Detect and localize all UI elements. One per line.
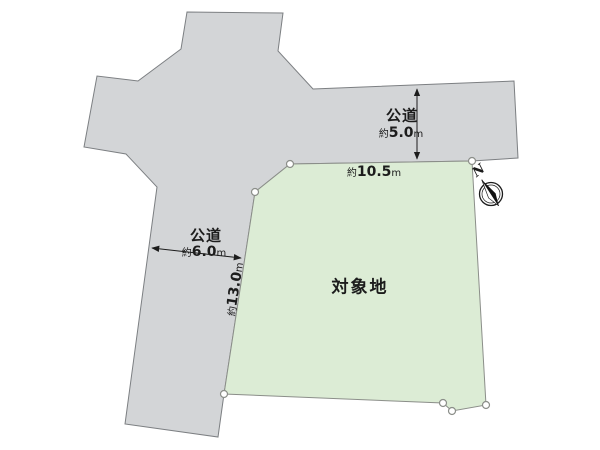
north-frontage-label: 約10.5m bbox=[347, 163, 401, 179]
dim-value: 5.0 bbox=[389, 125, 414, 141]
vertex-marker bbox=[221, 391, 228, 398]
land-plot-diagram: 公道 約5.0m 約10.5m 公道 約6.0m 約13.0m 対象地 N bbox=[0, 0, 600, 450]
dim-prefix: 約 bbox=[182, 248, 192, 259]
dim-unit: m bbox=[391, 168, 401, 179]
dim-prefix: 約 bbox=[227, 305, 239, 317]
vertex-marker bbox=[287, 161, 294, 168]
vertex-marker bbox=[252, 189, 259, 196]
north-road-label: 公道 bbox=[386, 109, 418, 124]
dim-value: 6.0 bbox=[192, 244, 217, 260]
north-road-width-label: 約5.0m bbox=[379, 124, 424, 140]
vertex-marker bbox=[449, 408, 456, 415]
dim-unit: m bbox=[217, 248, 227, 259]
vertex-marker bbox=[440, 400, 447, 407]
dim-value: 10.5 bbox=[357, 164, 392, 180]
subject-plot-label: 対象地 bbox=[332, 280, 389, 297]
diagram-canvas bbox=[0, 0, 600, 450]
dim-prefix: 約 bbox=[347, 168, 357, 179]
west-road-label: 公道 bbox=[190, 229, 222, 244]
compass-icon bbox=[478, 177, 502, 208]
dim-unit: m bbox=[234, 262, 246, 273]
vertex-marker bbox=[483, 402, 490, 409]
west-road-width-label: 約6.0m bbox=[182, 243, 227, 259]
dim-unit: m bbox=[414, 129, 424, 140]
dim-prefix: 約 bbox=[379, 129, 389, 140]
